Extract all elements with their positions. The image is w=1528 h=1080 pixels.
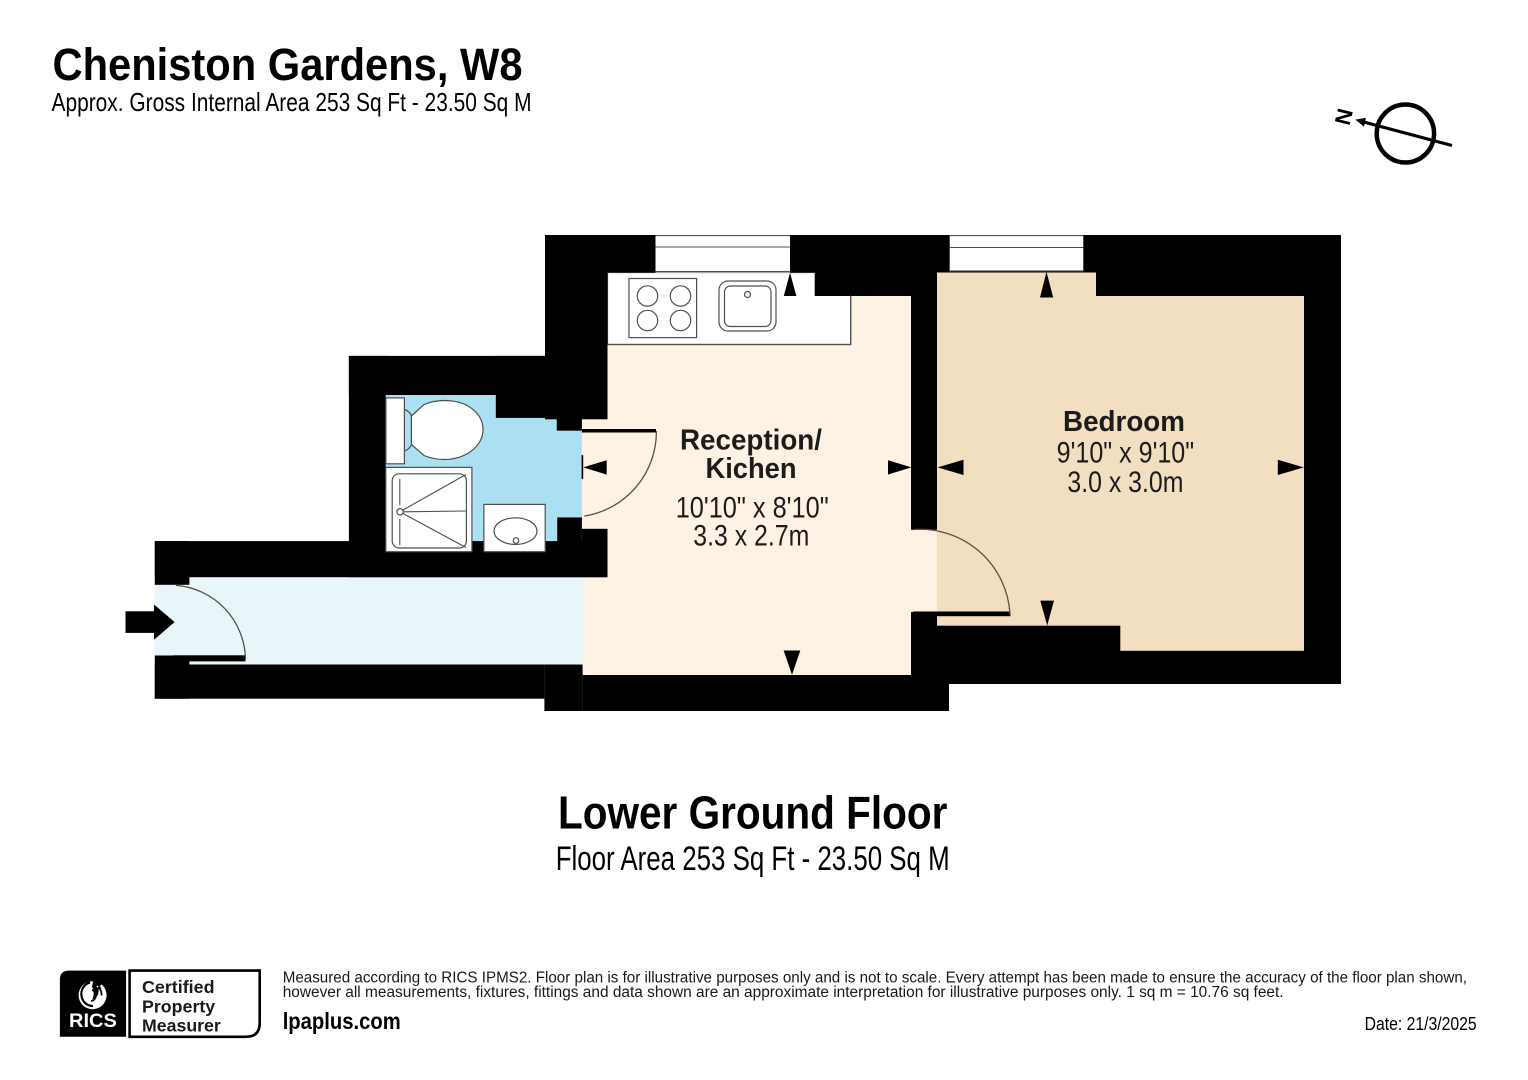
svg-text:Lower Ground Floor: Lower Ground Floor <box>558 787 947 839</box>
svg-text:Approx. Gross Internal Area 25: Approx. Gross Internal Area 253 Sq Ft - … <box>52 87 532 117</box>
svg-text:3.3 x 2.7m: 3.3 x 2.7m <box>693 520 809 553</box>
svg-text:9'10" x 9'10": 9'10" x 9'10" <box>1057 436 1195 469</box>
svg-text:N: N <box>1330 106 1358 127</box>
svg-text:Certified: Certified <box>142 977 215 997</box>
svg-text:Kichen: Kichen <box>706 453 797 485</box>
svg-text:Reception/: Reception/ <box>680 424 822 456</box>
svg-text:3.0 x 3.0m: 3.0 x 3.0m <box>1067 466 1183 499</box>
svg-text:RICS: RICS <box>69 1010 117 1032</box>
svg-text:Date: 21/3/2025: Date: 21/3/2025 <box>1365 1014 1477 1034</box>
svg-text:Floor Area 253 Sq Ft - 23.50 S: Floor Area 253 Sq Ft - 23.50 Sq M <box>556 840 950 878</box>
svg-text:Property: Property <box>142 996 215 1016</box>
svg-text:Measurer: Measurer <box>142 1015 221 1035</box>
svg-text:Bedroom: Bedroom <box>1063 406 1185 438</box>
svg-text:however all measurements, fixt: however all measurements, fixtures, fitt… <box>283 984 1284 1001</box>
svg-text:Cheniston Gardens, W8: Cheniston Gardens, W8 <box>53 39 523 90</box>
svg-text:lpaplus.com: lpaplus.com <box>283 1008 401 1034</box>
